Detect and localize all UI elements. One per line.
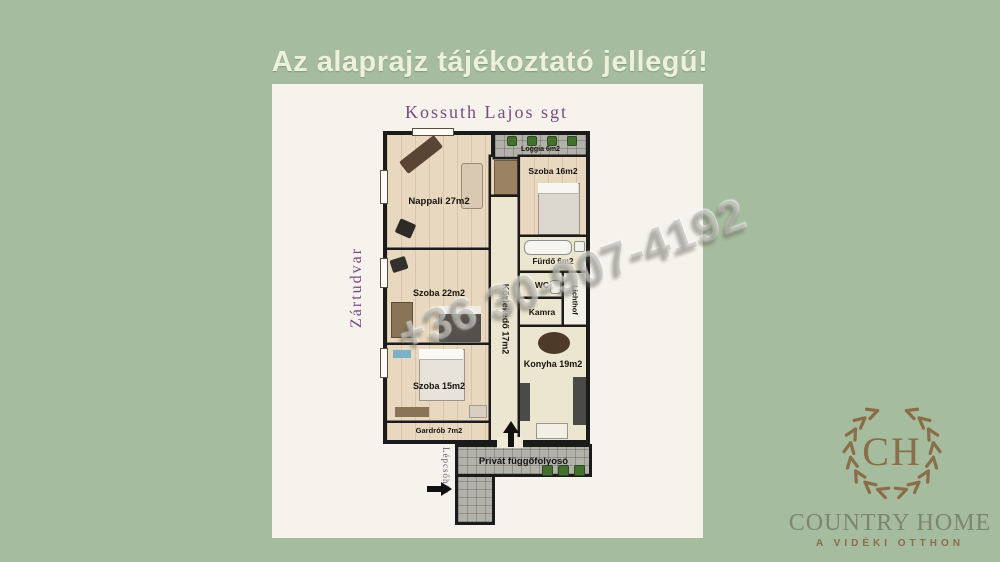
room-label-szoba16: Szoba 16m2 [520, 167, 586, 177]
room-label-nappali: Nappali 27m2 [387, 197, 491, 208]
plant-icon [567, 136, 577, 146]
logo-tagline: A VIDÉKI OTTHON [780, 538, 1000, 549]
logo-monogram: CH [837, 428, 947, 475]
window-icon [412, 128, 454, 136]
staircase-arrow-icon [427, 486, 442, 492]
armchair-icon [395, 218, 417, 239]
walkway-label: Privát függőfolyosó [458, 456, 589, 467]
room-label-loggia: Loggia 6m2 [495, 146, 586, 154]
plant-icon [558, 465, 569, 476]
page-title: Az alaprajz tájékoztató jellegű! [240, 46, 740, 79]
room-konyha: Konyha 19m2 [520, 327, 586, 440]
room-label-szoba15: Szoba 15m2 [387, 381, 491, 391]
room-szoba15: Szoba 15m2 [387, 345, 491, 423]
window-icon [380, 258, 388, 288]
counter-icon [520, 383, 530, 421]
plant-icon [547, 136, 557, 146]
plant-icon [542, 465, 553, 476]
dresser-icon [395, 407, 429, 417]
nightstand-icon [469, 405, 487, 418]
logo-name: COUNTRY HOME [780, 510, 1000, 537]
walkway-vertical [455, 477, 495, 525]
window-icon [380, 170, 388, 204]
plant-icon [527, 136, 537, 146]
entrance-arrow-icon [508, 432, 514, 447]
bed-pillow-icon [538, 183, 578, 194]
walkway-horizontal: Privát függőfolyosó [455, 444, 592, 477]
page: { "page": { "title": "Az alaprajz tájéko… [0, 0, 1000, 562]
room-loggia: Loggia 6m2 [495, 135, 586, 157]
counter-icon [573, 377, 586, 425]
window-icon [380, 348, 388, 378]
chair-icon [389, 256, 408, 273]
courtyard-label: Zártudvar [348, 218, 366, 328]
room-label-gardrob: Gardrób 7m2 [387, 427, 491, 436]
room-gardrob: Gardrób 7m2 [387, 423, 491, 440]
kitchen-island-icon [536, 423, 568, 439]
street-label: Kossuth Lajos sgt [383, 102, 590, 123]
plant-icon [574, 465, 585, 476]
room-nappali: Nappali 27m2 [387, 135, 491, 250]
kitchen-table-icon [538, 332, 570, 354]
closet-nook [491, 157, 520, 197]
room-szoba16: Szoba 16m2 [520, 157, 586, 237]
closet-icon [494, 160, 518, 195]
dining-table-icon [399, 135, 443, 174]
plant-icon [507, 136, 517, 146]
room-label-konyha: Konyha 19m2 [520, 359, 586, 369]
staircase-arrow-icon [441, 482, 452, 496]
